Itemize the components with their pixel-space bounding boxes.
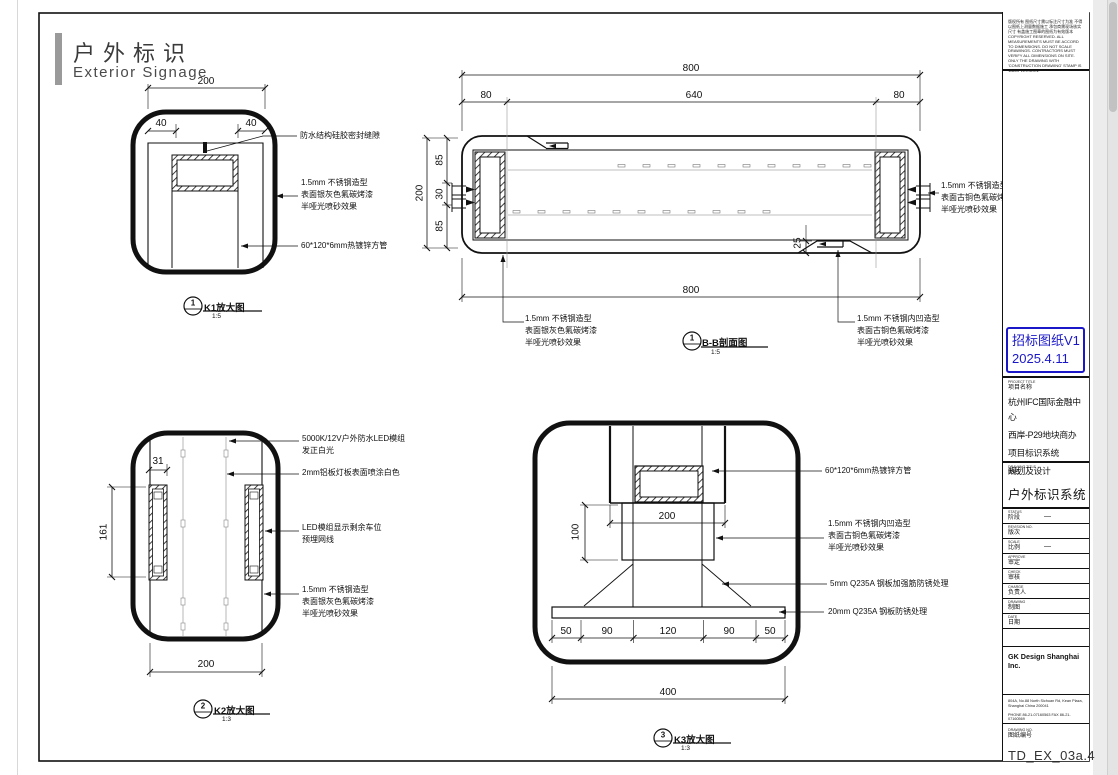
k3-annotation-steel: 1.5mm 不锈钢内凹造型表面古铜色氟碳烤漆半哑光喷砂效果 <box>828 518 911 554</box>
k1-dim-40-left: 40 <box>155 118 166 129</box>
k2-annotation-display: LED模组显示剩余车位预埋网线 <box>302 522 382 546</box>
bb-detail-bubble: 1 <box>690 334 694 343</box>
k3-dim-200: 200 <box>659 511 676 522</box>
bb-detail-scale: 1:5 <box>711 349 720 356</box>
drawing-number: TD_EX_03a.4 <box>1008 748 1086 763</box>
project-line: 项目标识系统 <box>1008 446 1086 461</box>
k1-annotation-tube: 60*120*6mm热镀锌方管 <box>301 240 387 252</box>
k2-detail-linework <box>107 433 299 718</box>
bb-dim-800-top: 800 <box>683 63 700 74</box>
k3-dim-90b: 90 <box>723 626 734 637</box>
k3-detail-scale: 1:3 <box>681 745 690 752</box>
k1-detail-name: K1放大图 <box>204 300 245 314</box>
k3-dim-100: 100 <box>571 524 582 541</box>
bb-dim-80-right: 80 <box>893 90 904 101</box>
header-accent-bar <box>55 33 62 85</box>
bb-section-linework <box>422 70 939 350</box>
k1-annotation-steel: 1.5mm 不锈钢造型表面银灰色氟碳烤漆半哑光喷砂效果 <box>301 177 373 213</box>
k3-detail-bubble: 3 <box>661 731 665 740</box>
bb-dim-25: 25 <box>793 237 804 248</box>
row-charge: CHARGE 负责人 <box>1003 584 1089 599</box>
k2-dim-200: 200 <box>198 659 215 670</box>
k2-annotation-panel: 2mm铝板灯板表面喷涂白色 <box>302 467 400 479</box>
drawing-sheet: 户外标识 Exterior Signage 200 40 40 防水结构硅胶密封… <box>0 0 1118 775</box>
project-title-label-cn: 项目名称 <box>1008 385 1086 392</box>
k3-dim-50b: 50 <box>764 626 775 637</box>
k2-annotation-steel: 1.5mm 不锈钢造型表面银灰色氟碳烤漆半哑光喷砂效果 <box>302 584 374 620</box>
page-title-en: Exterior Signage <box>73 64 208 81</box>
tender-stamp-date: 2025.4.11 <box>1012 350 1083 368</box>
divider <box>1003 69 1089 71</box>
k1-detail-bubble: 1 <box>191 299 195 308</box>
row-scale: SCALE 比例 — <box>1003 539 1089 554</box>
disclaimer-text: 版权所有 图纸尺寸需以标注尺寸为准 不得以图纸上测量数据施工 承包商需现场核实尺… <box>1003 20 1089 74</box>
bb-annotation-left: 1.5mm 不锈钢造型表面银灰色氟碳烤漆半哑光喷砂效果 <box>525 313 597 349</box>
bb-dim-640: 640 <box>686 90 703 101</box>
k3-annotation-tube: 60*120*6mm热镀锌方管 <box>825 465 911 477</box>
project-line: 杭州IFC国际金融中心 <box>1008 395 1086 425</box>
tender-stamp-box: 招标图纸V1 2025.4.11 <box>1006 327 1085 373</box>
k3-annotation-plate: 20mm Q235A 钢板防锈处理 <box>828 606 927 618</box>
project-line: 西岸-P29地块商办 <box>1008 428 1086 443</box>
drawing-number-section: DRAWING NO. 图纸编号 TD_EX_03a.4 <box>1003 725 1089 763</box>
k2-detail-scale: 1:3 <box>222 716 231 723</box>
k3-dim-400: 400 <box>660 687 677 698</box>
k1-dim-40-right: 40 <box>245 118 256 129</box>
k2-annotation-led: 5000K/12V户外防水LED模组发正白光 <box>302 433 405 457</box>
company-address: 804A, No.88 North Sichuan Rd, Kean Plaza… <box>1003 696 1089 724</box>
k3-dim-120: 120 <box>660 626 677 637</box>
k1-detail-scale: 1:5 <box>212 313 221 320</box>
drawing-no-label-cn: 图纸编号 <box>1008 733 1086 740</box>
row-approve: APPROVE 审定 <box>1003 554 1089 569</box>
k3-dim-50a: 50 <box>560 626 571 637</box>
k3-detail-name: K3放大图 <box>674 732 715 746</box>
approval-rows: STATUS 阶段 — REVISION NO. 版次 SCALE 比例 — A… <box>1003 509 1089 629</box>
cad-linework <box>0 0 1118 775</box>
k3-annotation-rib: 5mm Q235A 钢板加强筋防锈处理 <box>830 578 949 590</box>
row-status: STATUS 阶段 — <box>1003 509 1089 524</box>
title-block: 版权所有 图纸尺寸需以标注尺寸为准 不得以图纸上测量数据施工 承包商需现场核实尺… <box>1002 12 1089 761</box>
drawing-title-label-cn: 图名 <box>1008 470 1086 477</box>
row-drawing: DRAWING 制图 <box>1003 599 1089 614</box>
company-name: GK Design Shanghai Inc. <box>1003 648 1089 695</box>
bb-dim-30: 30 <box>435 188 446 199</box>
k2-detail-bubble: 2 <box>201 702 205 711</box>
k1-annotation-seal: 防水结构硅胶密封缝隙 <box>300 130 380 142</box>
k2-detail-name: K2放大图 <box>214 703 255 717</box>
bb-dim-85-top: 85 <box>435 154 446 165</box>
k3-detail-linework <box>535 423 827 747</box>
bb-dim-200: 200 <box>415 185 426 202</box>
row-revision: REVISION NO. 版次 <box>1003 524 1089 539</box>
bb-dim-80-left: 80 <box>480 90 491 101</box>
row-check: CHECK 审核 <box>1003 569 1089 584</box>
k2-dim-161: 161 <box>99 524 110 541</box>
bb-detail-name: B-B剖面图 <box>702 335 747 349</box>
drawing-title-section: DRAWING TITLE 图名 户外标识系统 <box>1003 463 1089 503</box>
sheet-frame <box>39 13 1089 761</box>
drawing-title: 户外标识系统 <box>1008 484 1086 503</box>
bb-dim-85-bottom: 85 <box>435 220 446 231</box>
k2-dim-31: 31 <box>152 456 163 467</box>
tender-stamp-line1: 招标图纸V1 <box>1012 332 1083 350</box>
bb-dim-800-bottom: 800 <box>683 285 700 296</box>
k3-dim-90a: 90 <box>601 626 612 637</box>
empty-row <box>1003 621 1089 647</box>
k1-dim-200: 200 <box>198 76 215 87</box>
bb-annotation-right-bottom: 1.5mm 不锈钢内凹造型表面古铜色氟碳烤漆半哑光喷砂效果 <box>857 313 940 349</box>
